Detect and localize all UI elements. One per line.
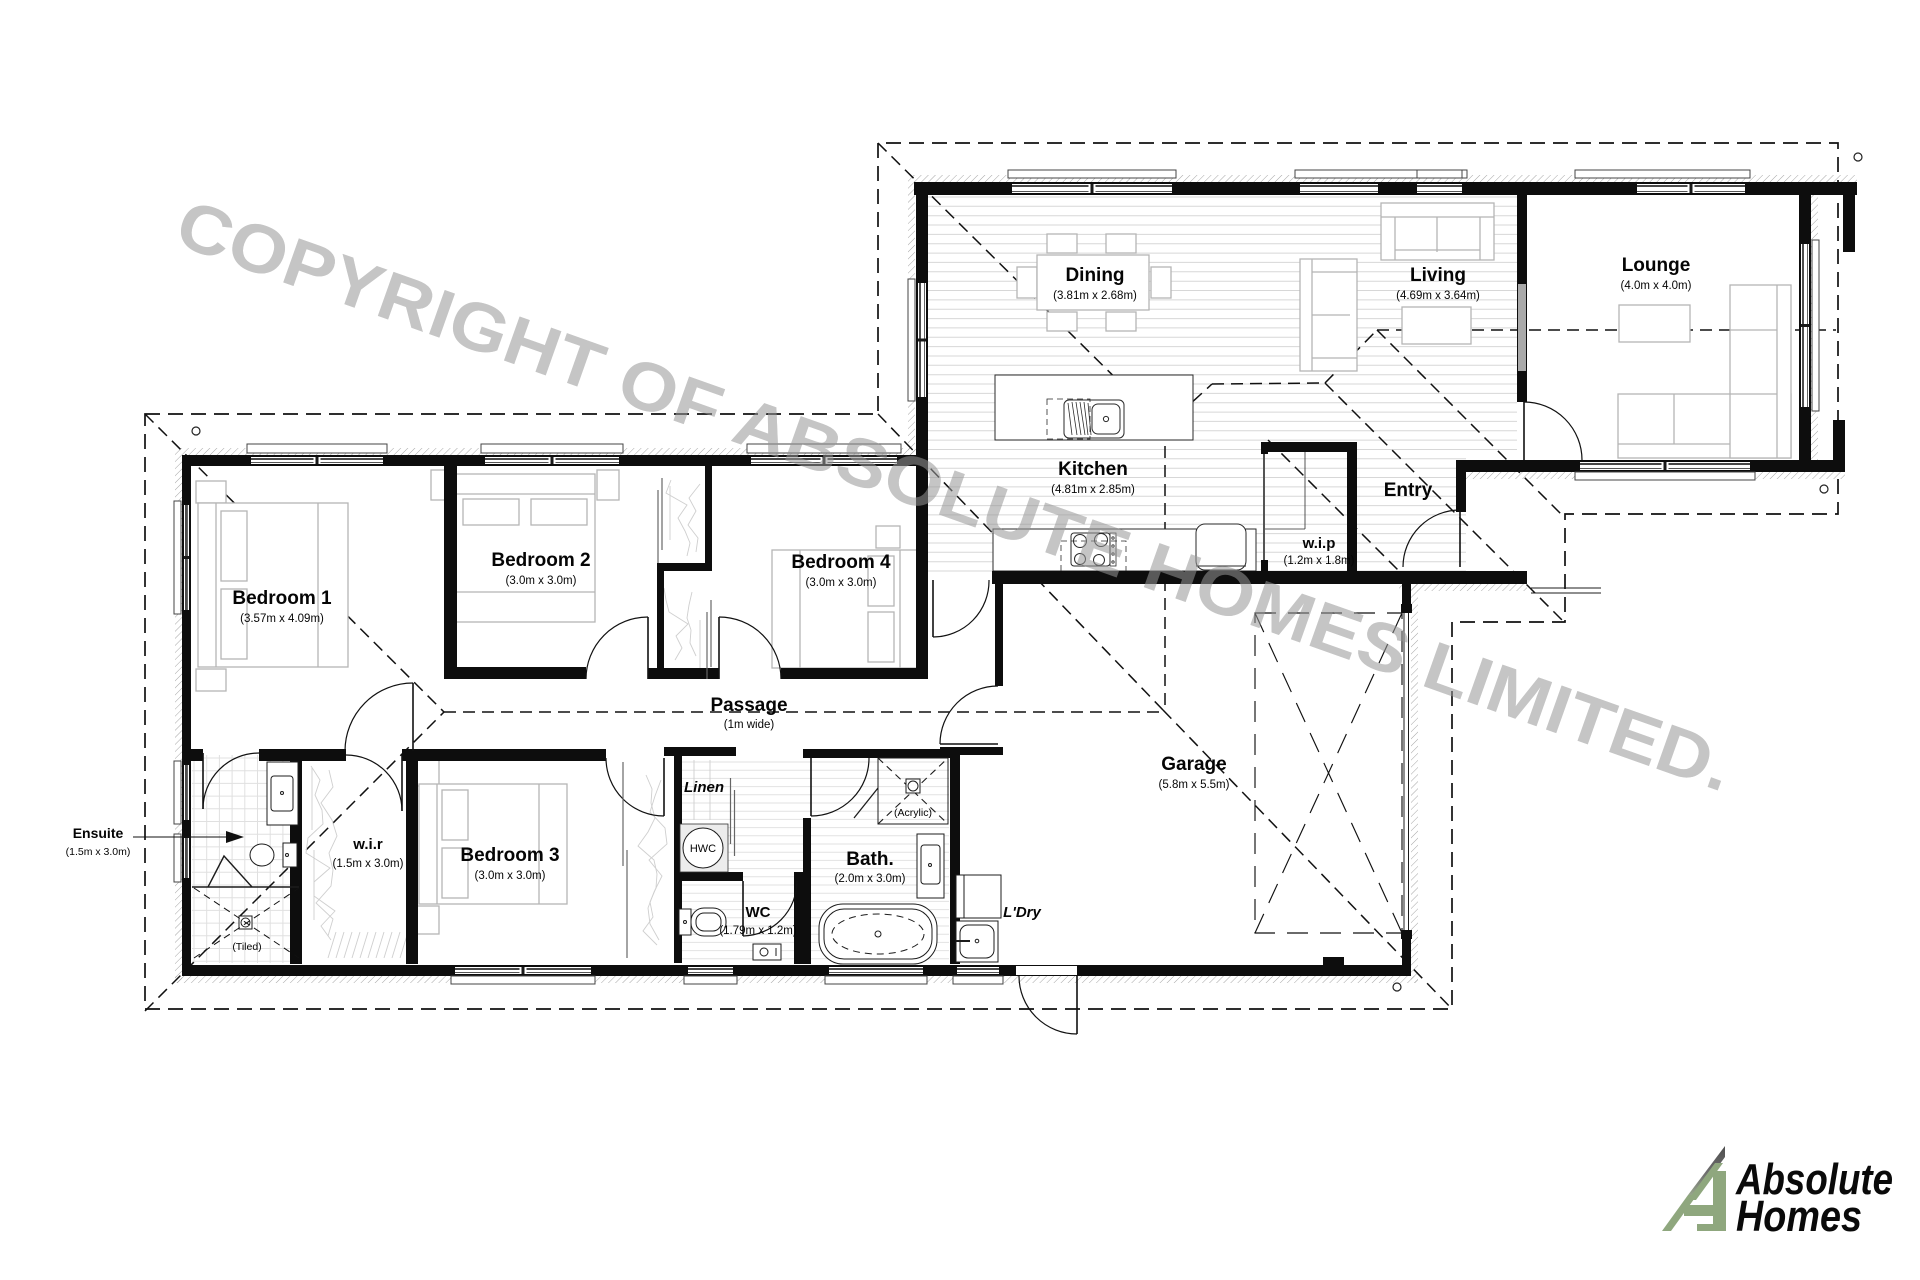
svg-text:(3.57m x 4.09m): (3.57m x 4.09m) xyxy=(240,613,324,625)
svg-text:Homes: Homes xyxy=(1736,1192,1862,1241)
svg-text:WC: WC xyxy=(746,904,771,921)
svg-text:(4.0m x 4.0m): (4.0m x 4.0m) xyxy=(1621,280,1692,292)
svg-text:(3.0m x 3.0m): (3.0m x 3.0m) xyxy=(506,575,577,587)
svg-text:(4.81m x 2.85m): (4.81m x 2.85m) xyxy=(1051,484,1135,496)
svg-text:(3.0m x 3.0m): (3.0m x 3.0m) xyxy=(475,870,546,882)
svg-text:Ensuite: Ensuite xyxy=(73,825,124,841)
svg-text:Bath.: Bath. xyxy=(846,849,894,870)
svg-text:(3.81m x 2.68m): (3.81m x 2.68m) xyxy=(1053,290,1137,302)
svg-text:Bedroom 2: Bedroom 2 xyxy=(491,550,590,571)
svg-text:(1.5m x 3.0m): (1.5m x 3.0m) xyxy=(66,846,131,858)
svg-text:Entry: Entry xyxy=(1384,480,1433,501)
svg-text:Bedroom 1: Bedroom 1 xyxy=(232,588,332,609)
svg-text:Dining: Dining xyxy=(1065,265,1124,286)
svg-text:HWC: HWC xyxy=(690,843,716,855)
svg-text:Bedroom 4: Bedroom 4 xyxy=(791,552,891,573)
svg-text:w.i.p: w.i.p xyxy=(1302,535,1336,552)
svg-text:(Tiled): (Tiled) xyxy=(232,941,261,953)
svg-text:(4.69m x 3.64m): (4.69m x 3.64m) xyxy=(1396,290,1480,302)
svg-text:(5.8m x 5.5m): (5.8m x 5.5m) xyxy=(1159,779,1230,791)
svg-text:Kitchen: Kitchen xyxy=(1058,459,1128,480)
svg-text:(1.2m x 1.8m): (1.2m x 1.8m) xyxy=(1284,555,1355,567)
svg-text:(1m wide): (1m wide) xyxy=(724,719,775,731)
svg-text:(1.79m x 1.2m): (1.79m x 1.2m) xyxy=(719,925,796,937)
svg-text:(2.0m x 3.0m): (2.0m x 3.0m) xyxy=(835,873,906,885)
svg-text:Living: Living xyxy=(1410,265,1466,286)
svg-text:L'Dry: L'Dry xyxy=(1003,904,1041,921)
svg-text:w.i.r: w.i.r xyxy=(352,836,383,853)
svg-text:Garage: Garage xyxy=(1161,754,1226,775)
svg-text:Passage: Passage xyxy=(710,695,787,716)
svg-text:(3.0m x 3.0m): (3.0m x 3.0m) xyxy=(806,577,877,589)
svg-text:(Acrylic): (Acrylic) xyxy=(894,807,932,819)
svg-text:Lounge: Lounge xyxy=(1622,255,1691,276)
svg-text:(1.5m x 3.0m): (1.5m x 3.0m) xyxy=(333,858,404,870)
svg-text:Linen: Linen xyxy=(684,779,724,796)
svg-text:Bedroom 3: Bedroom 3 xyxy=(460,845,559,866)
